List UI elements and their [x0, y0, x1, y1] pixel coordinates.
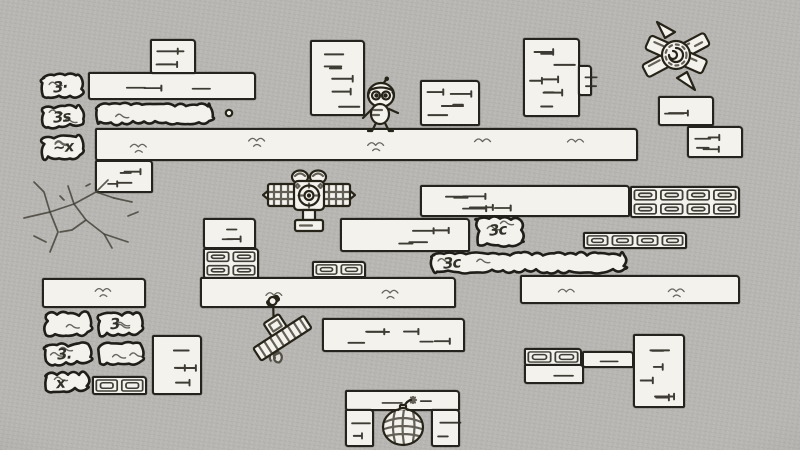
block-platform: [520, 275, 740, 304]
block-brick: [322, 318, 465, 352]
bush-label: 3s: [52, 109, 71, 125]
block-bush: [92, 99, 218, 129]
block-brick: [687, 126, 743, 158]
block-metal: [630, 186, 740, 218]
block-brick: [633, 334, 685, 408]
level-canvas[interactable]: 3·3s~x3c3c33.x: [0, 0, 800, 450]
turret-machine: [262, 168, 356, 238]
block-brick: [340, 218, 470, 252]
bush-label: x: [55, 376, 65, 392]
bush-label: 3: [109, 317, 120, 333]
block-brick: [150, 39, 196, 74]
block-brick: [345, 409, 374, 447]
block-bush: [40, 308, 96, 340]
block-brick: [420, 80, 480, 126]
bush-label: 3c: [488, 222, 507, 238]
block-brick: [658, 96, 714, 126]
block-brick: [88, 72, 256, 100]
block-bush: 3s: [37, 101, 89, 132]
tilted-pump-cart: [236, 292, 318, 364]
block-bush: 3c: [427, 248, 632, 277]
block-brick: [578, 65, 592, 96]
block-bush: 3·: [37, 71, 89, 102]
block-metal: [583, 232, 687, 249]
block-metal: [203, 248, 259, 279]
bomb-icon: [377, 396, 431, 448]
block-metal: [312, 261, 366, 278]
block-metal: [92, 376, 147, 395]
player-character: [360, 78, 402, 133]
block-brick: [582, 351, 634, 368]
bush-label: 3·: [52, 79, 67, 95]
block-brick: [203, 218, 256, 249]
block-brick: [152, 335, 202, 395]
crack-decal: [16, 172, 156, 264]
block-bush: x: [40, 368, 94, 396]
bush-label: 3c: [442, 255, 461, 271]
block-bush: 3: [94, 308, 148, 340]
block-brick: [431, 409, 460, 447]
block-brick: [310, 40, 365, 116]
block-bush: 3c: [472, 212, 528, 250]
block-brick: [524, 364, 584, 384]
block-bush: [94, 339, 148, 369]
block-brick: [523, 38, 580, 117]
bush-label: 3.: [56, 346, 71, 362]
bush-label: ~x: [52, 139, 73, 156]
block-bush: ~x: [37, 131, 89, 163]
saw-blade-hazard: [637, 20, 715, 92]
block-bush: 3.: [40, 339, 96, 369]
pebble-icon: [224, 108, 234, 118]
block-platform: [42, 278, 146, 308]
